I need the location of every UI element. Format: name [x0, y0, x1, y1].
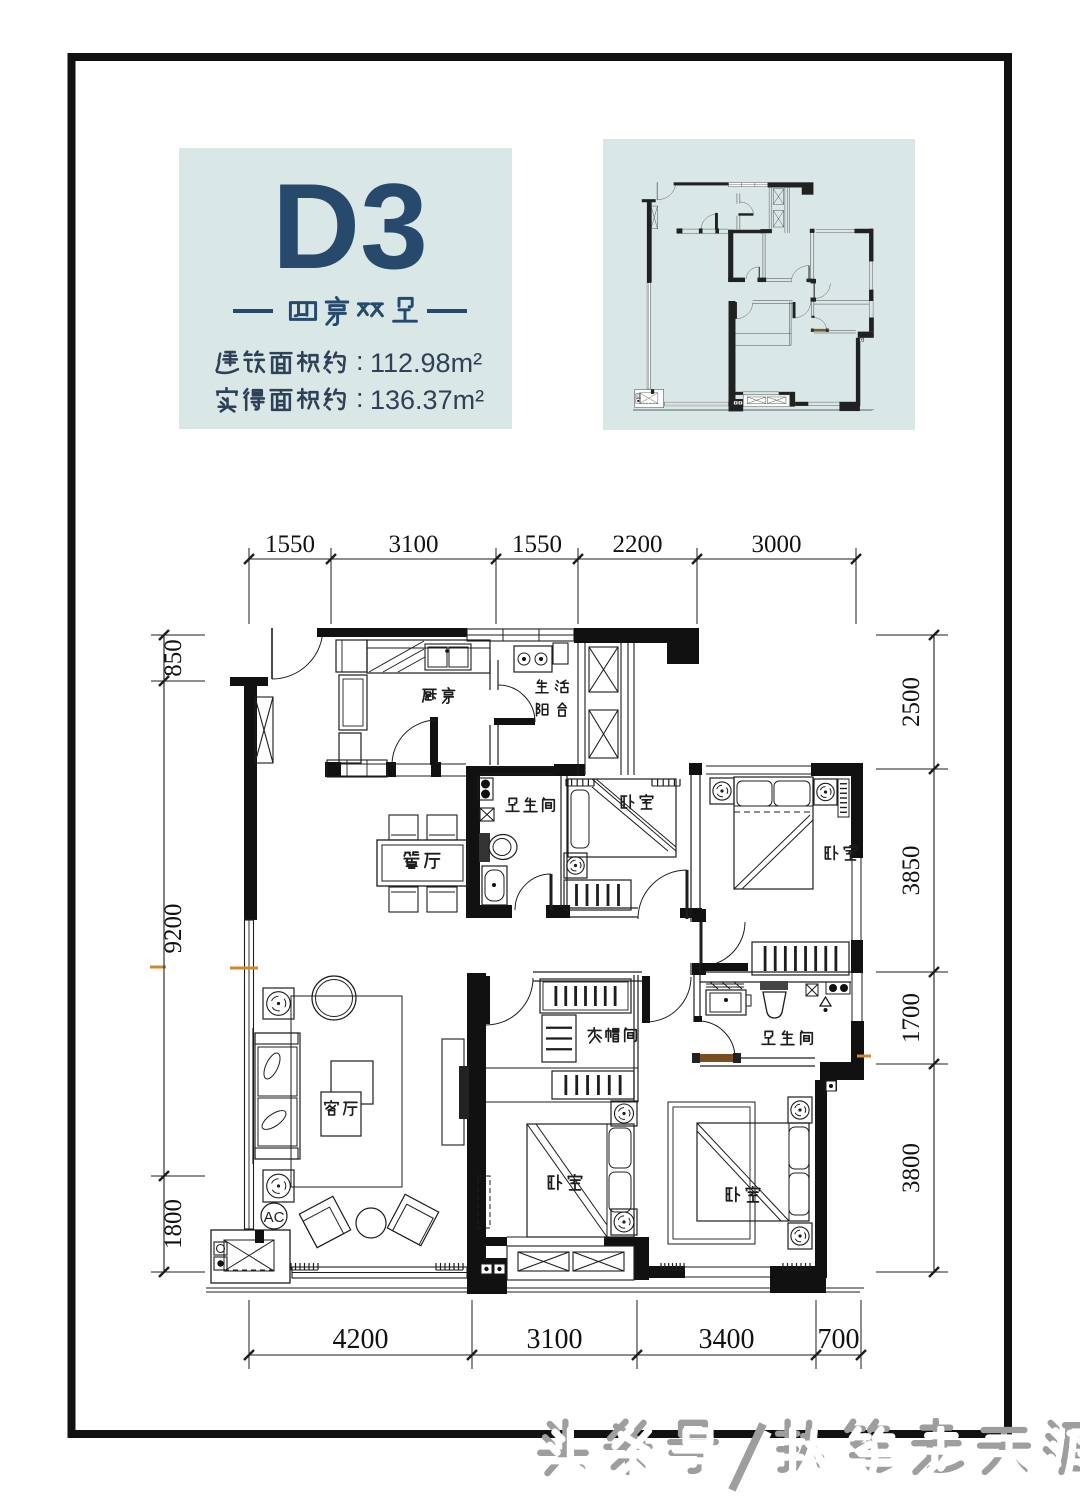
svg-text:136.37m²: 136.37m² [370, 385, 484, 415]
svg-text:3000: 3000 [752, 531, 802, 558]
svg-text:1800: 1800 [160, 1199, 187, 1249]
svg-text:4200: 4200 [333, 1324, 389, 1355]
svg-text:1700: 1700 [898, 993, 925, 1043]
svg-text:AC: AC [264, 1209, 285, 1226]
svg-text:3800: 3800 [898, 1143, 925, 1193]
svg-text:112.98m²: 112.98m² [370, 348, 482, 378]
svg-text:1550: 1550 [512, 531, 562, 558]
svg-text:2500: 2500 [898, 677, 925, 727]
svg-text:700: 700 [818, 1324, 860, 1355]
svg-text:850: 850 [160, 639, 187, 677]
svg-text:9200: 9200 [160, 904, 187, 954]
svg-text:1550: 1550 [265, 531, 315, 558]
svg-text:D3: D3 [272, 158, 428, 294]
svg-text::: : [356, 346, 364, 376]
svg-text:3850: 3850 [898, 846, 925, 896]
svg-text:3100: 3100 [389, 531, 439, 558]
svg-text:2200: 2200 [613, 531, 663, 558]
svg-text:3100: 3100 [527, 1324, 583, 1355]
svg-text:3400: 3400 [699, 1324, 755, 1355]
svg-text::: : [356, 383, 364, 413]
